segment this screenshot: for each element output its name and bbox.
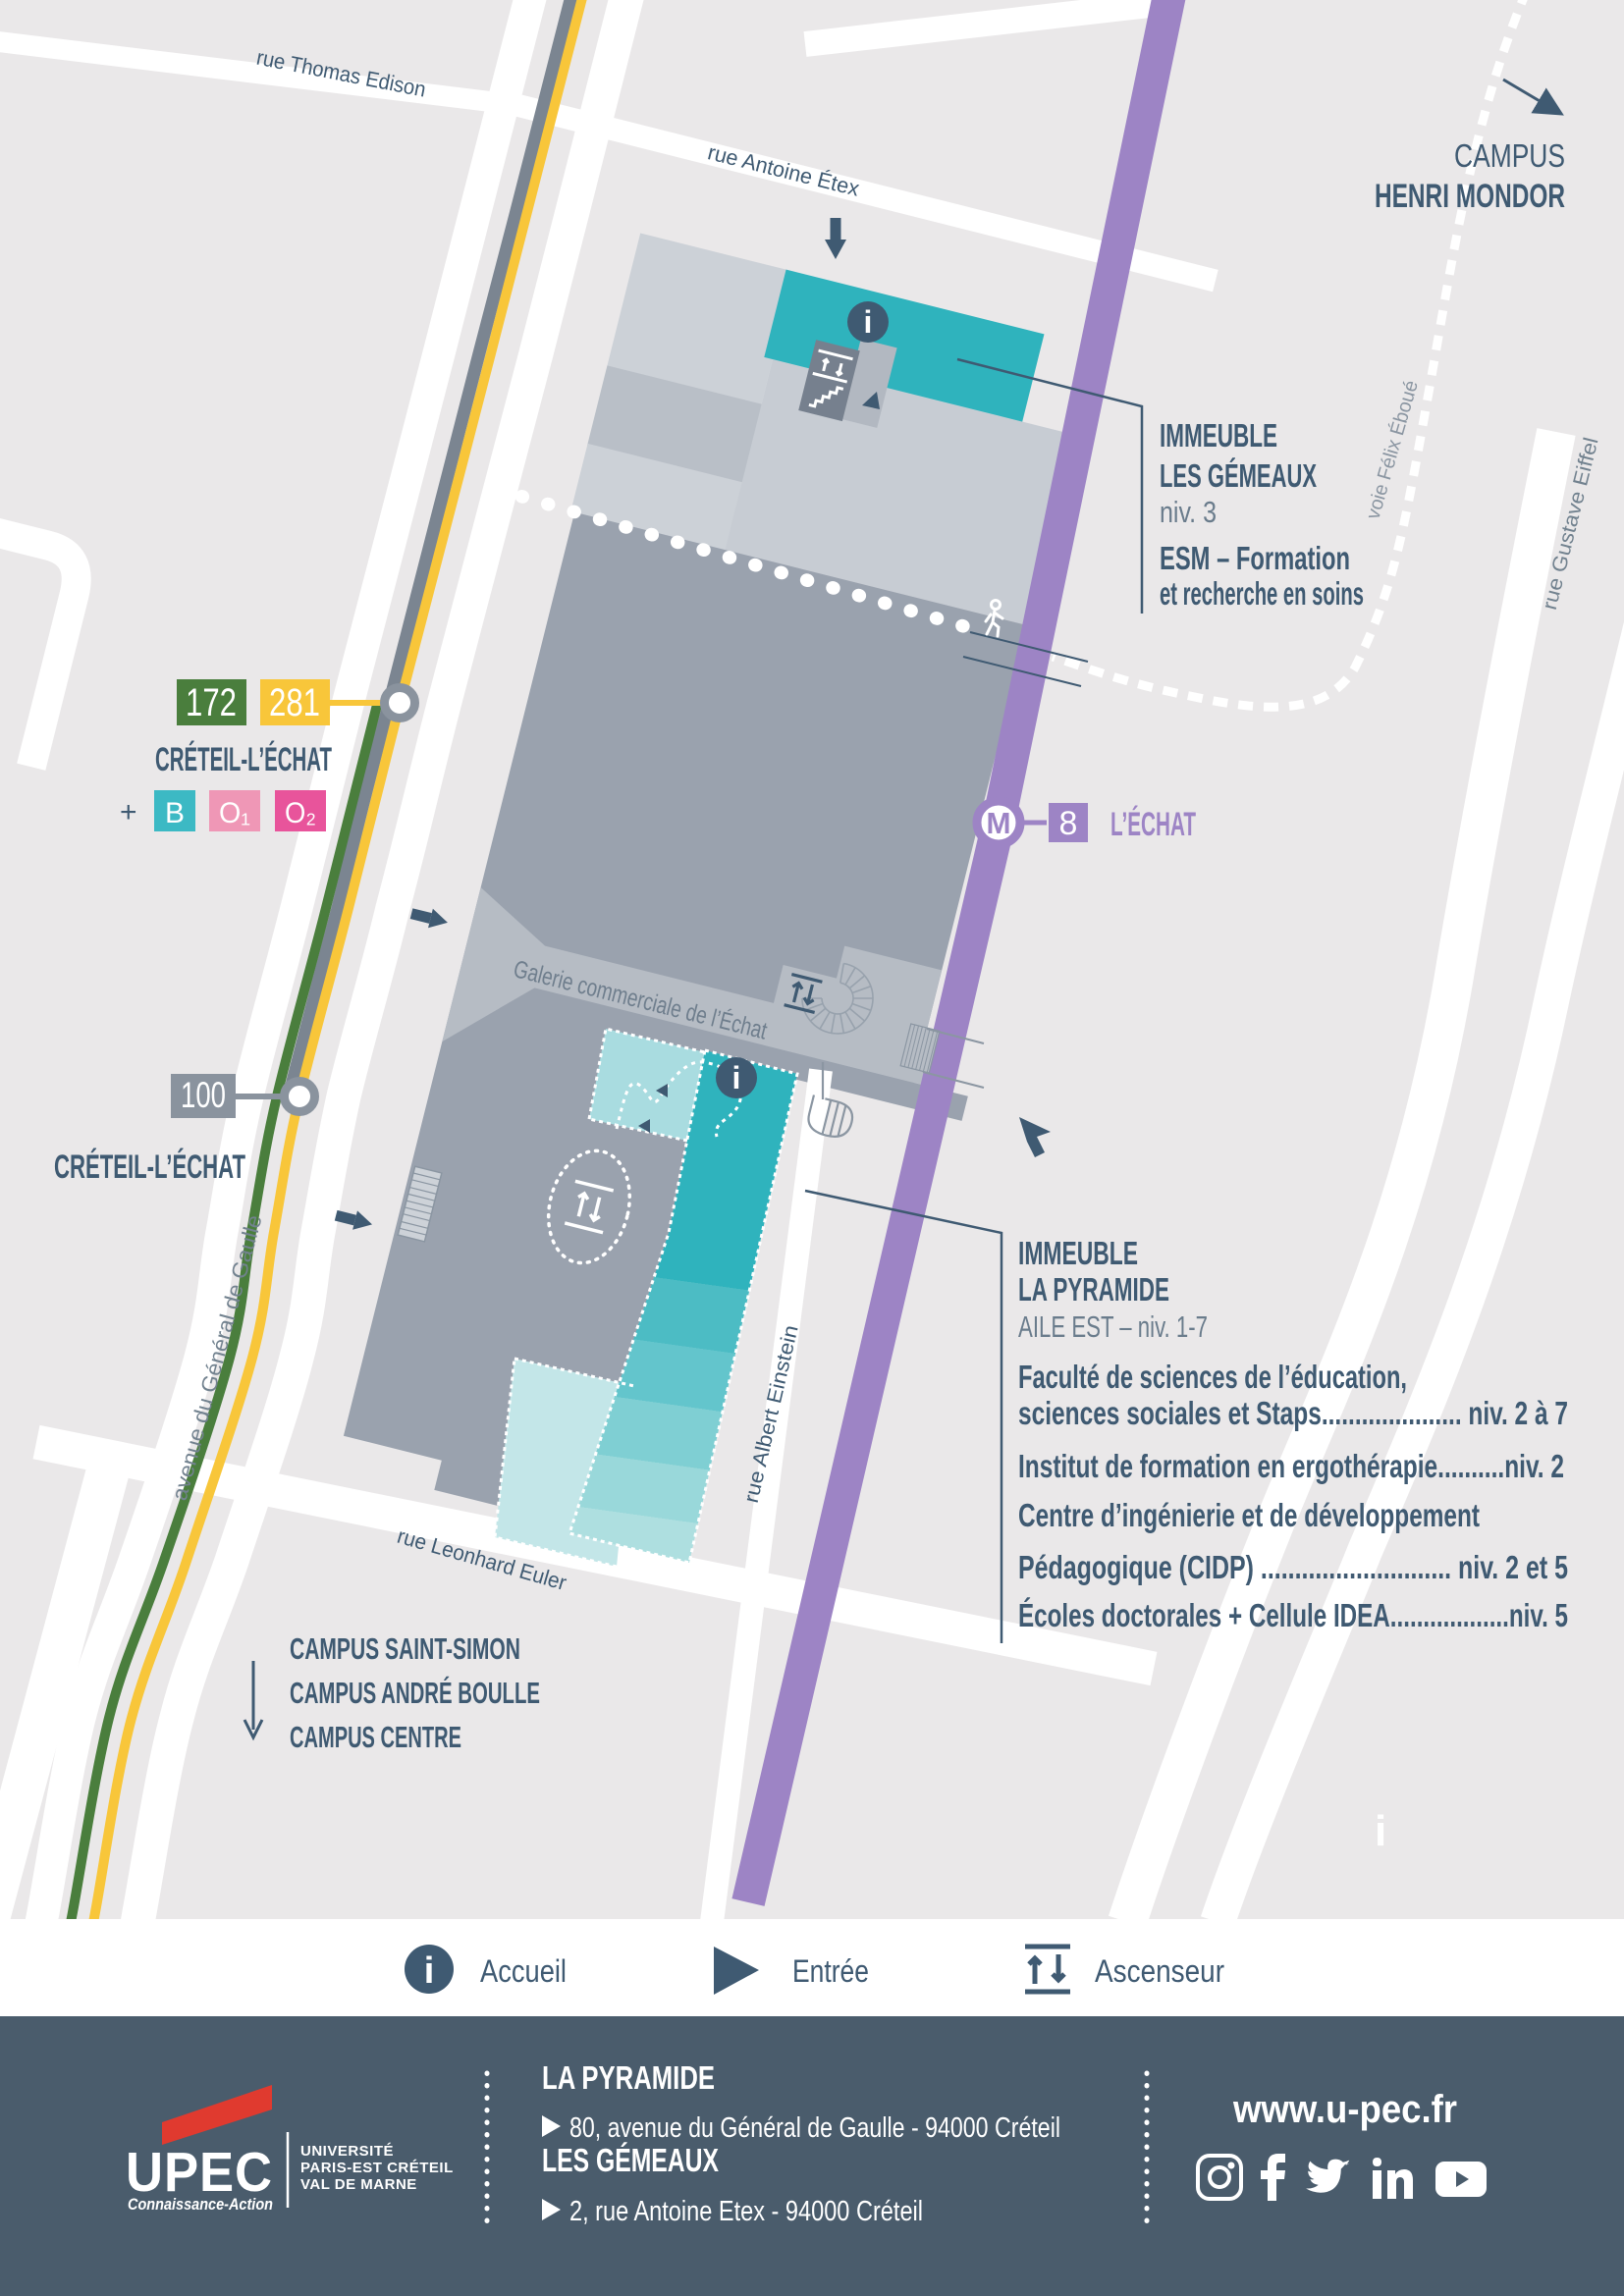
svg-text:80, avenue du Général de Gaull: 80, avenue du Général de Gaulle - 94000 …	[569, 2112, 1060, 2144]
svg-text:Faculté de sciences de l’éduca: Faculté de sciences de l’éducation,	[1018, 1359, 1407, 1395]
svg-text:i: i	[1375, 1807, 1386, 1855]
svg-text:Accueil: Accueil	[480, 1953, 567, 1989]
svg-text:Centre d’ingénierie et de déve: Centre d’ingénierie et de développement	[1018, 1497, 1480, 1533]
svg-text:i: i	[424, 1950, 435, 1992]
svg-text:i: i	[732, 1060, 741, 1095]
svg-text:ESM – Formation: ESM – Formation	[1160, 540, 1350, 576]
svg-text:IMMEUBLE: IMMEUBLE	[1160, 417, 1277, 454]
svg-text:Entrée: Entrée	[792, 1953, 869, 1989]
svg-text:VAL DE MARNE: VAL DE MARNE	[300, 2176, 417, 2193]
svg-text:et recherche en soins: et recherche en soins	[1160, 575, 1364, 612]
svg-text:LES GÉMEAUX: LES GÉMEAUX	[1160, 457, 1317, 494]
svg-text:M: M	[987, 806, 1011, 840]
svg-text:CAMPUS: CAMPUS	[1454, 137, 1565, 174]
svg-text:O₂: O₂	[285, 797, 316, 829]
svg-text:niv. 3: niv. 3	[1160, 495, 1217, 529]
svg-text:Institut de formation en ergot: Institut de formation en ergothérapie...…	[1018, 1448, 1564, 1484]
svg-text:PARIS-EST CRÉTEIL: PARIS-EST CRÉTEIL	[300, 2160, 454, 2176]
svg-text:Pédagogique (CIDP) ...........: Pédagogique (CIDP) .....................…	[1018, 1549, 1568, 1585]
svg-text:CRÉTEIL-L’ÉCHAT: CRÉTEIL-L’ÉCHAT	[155, 741, 332, 778]
svg-text:i: i	[864, 304, 873, 340]
svg-text:O₁: O₁	[219, 797, 250, 829]
svg-text:Ascenseur: Ascenseur	[1095, 1953, 1224, 1989]
svg-text:sciences sociales et Staps....: sciences sociales et Staps..............…	[1018, 1395, 1568, 1431]
svg-text:LES GÉMEAUX: LES GÉMEAUX	[542, 2142, 719, 2178]
svg-text:281: 281	[269, 681, 320, 724]
svg-text:CAMPUS CENTRE: CAMPUS CENTRE	[290, 1720, 461, 1754]
svg-text:CAMPUS ANDRÉ BOULLE: CAMPUS ANDRÉ BOULLE	[290, 1676, 540, 1710]
svg-text:2, rue Antoine Etex - 94000 Cr: 2, rue Antoine Etex - 94000 Créteil	[569, 2196, 923, 2227]
svg-text:B: B	[165, 797, 185, 829]
svg-text:CAMPUS SAINT-SIMON: CAMPUS SAINT-SIMON	[290, 1631, 520, 1666]
svg-text:L’ÉCHAT: L’ÉCHAT	[1110, 806, 1196, 843]
svg-text:8: 8	[1059, 805, 1078, 842]
svg-text:LA PYRAMIDE: LA PYRAMIDE	[542, 2059, 715, 2096]
svg-text:AILE EST – niv. 1-7: AILE EST – niv. 1-7	[1018, 1309, 1208, 1344]
svg-text:Écoles doctorales + Cellule ID: Écoles doctorales + Cellule IDEA........…	[1018, 1597, 1568, 1633]
svg-text:Connaissance-Action: Connaissance-Action	[128, 2195, 273, 2214]
svg-text:100: 100	[181, 1075, 226, 1115]
svg-text:HENRI MONDOR: HENRI MONDOR	[1375, 178, 1565, 215]
svg-text:+: +	[120, 796, 137, 828]
svg-text:www.u-pec.fr: www.u-pec.fr	[1232, 2088, 1457, 2131]
svg-text:CRÉTEIL-L’ÉCHAT: CRÉTEIL-L’ÉCHAT	[54, 1148, 245, 1186]
svg-text:LA PYRAMIDE: LA PYRAMIDE	[1018, 1271, 1169, 1308]
svg-text:IMMEUBLE: IMMEUBLE	[1018, 1235, 1138, 1271]
svg-text:UNIVERSITÉ: UNIVERSITÉ	[300, 2143, 394, 2160]
svg-text:172: 172	[186, 681, 237, 724]
